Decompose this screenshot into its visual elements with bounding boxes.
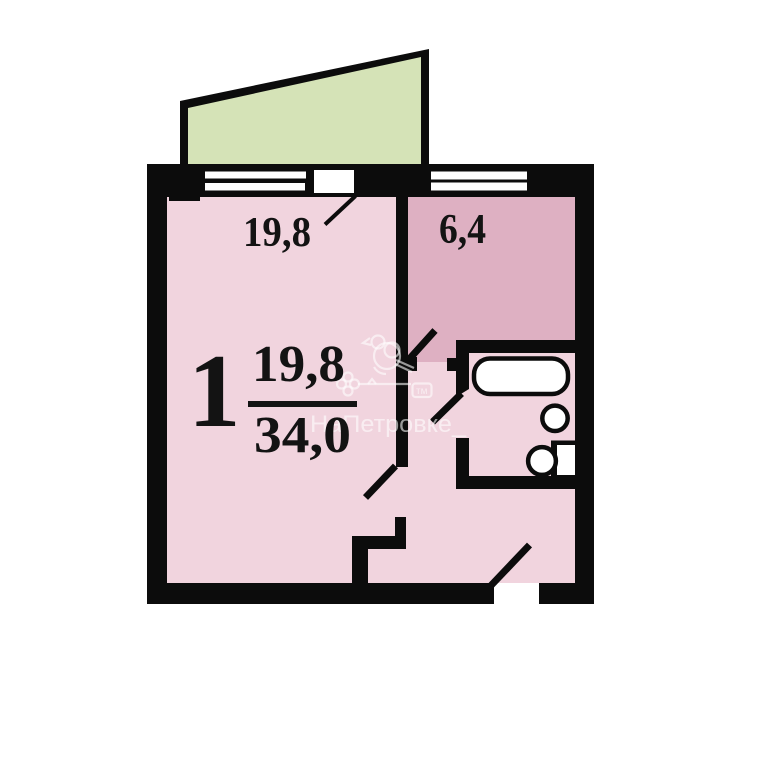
svg-text:19,8: 19,8 [252,336,345,393]
svg-text:тм: тм [416,386,428,397]
svg-text:6,4: 6,4 [439,207,486,253]
svg-text:1: 1 [188,332,241,449]
svg-text:19,8: 19,8 [243,210,311,256]
svg-text:34,0: 34,0 [254,407,351,464]
